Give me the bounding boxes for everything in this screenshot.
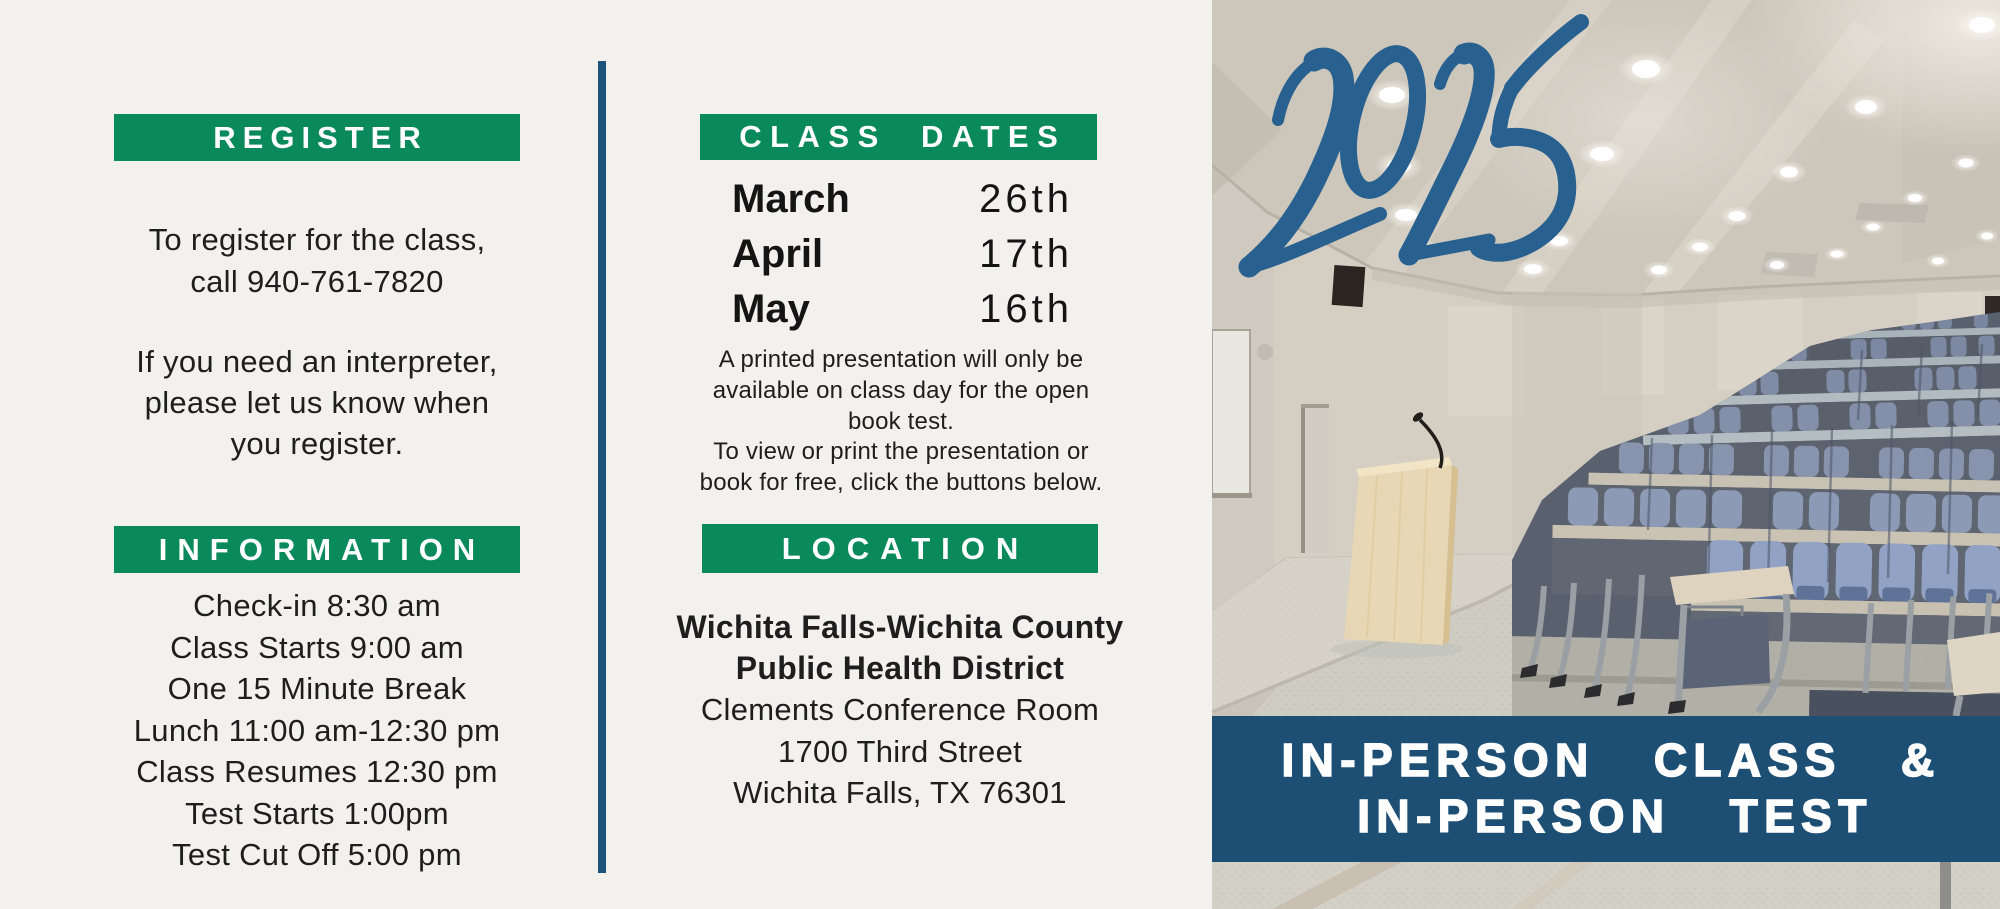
svg-text:IN-PERSON CLASS &: IN-PERSON CLASS & (1281, 734, 1940, 786)
svg-text:IN-PERSON TEST: IN-PERSON TEST (1357, 790, 1873, 842)
